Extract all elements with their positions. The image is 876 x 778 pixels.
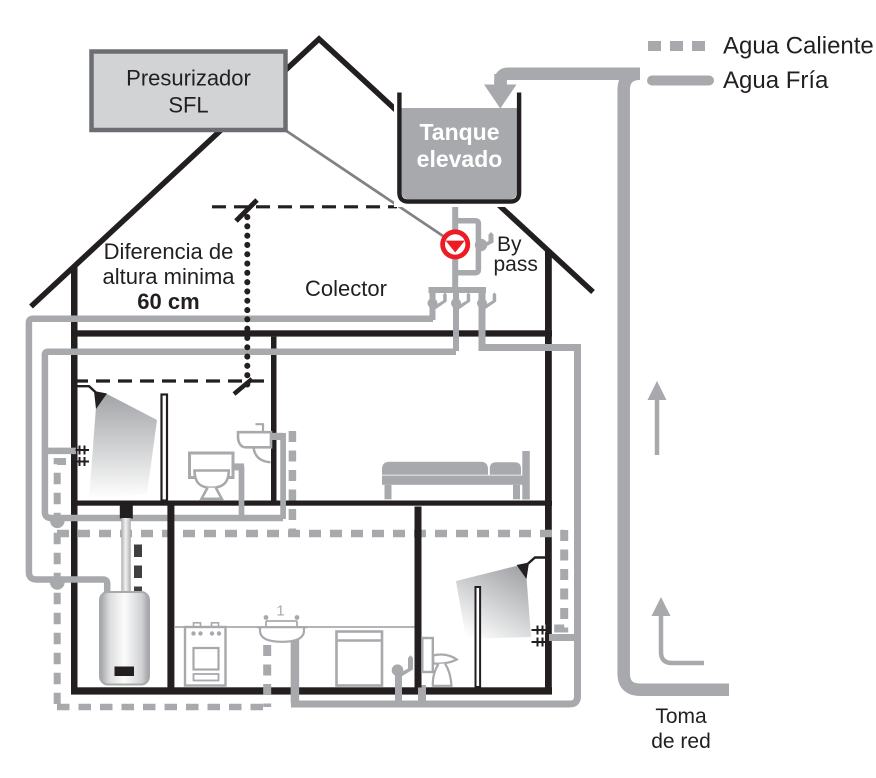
svg-text:Diferencia de: Diferencia de <box>104 239 234 264</box>
svg-text:altura minima: altura minima <box>102 264 235 289</box>
svg-text:Toma: Toma <box>655 705 707 728</box>
svg-text:60 cm: 60 cm <box>137 289 199 314</box>
svg-text:pass: pass <box>494 253 538 276</box>
svg-text:Colector: Colector <box>305 276 387 301</box>
svg-text:de red: de red <box>651 730 711 753</box>
svg-text:SFL: SFL <box>168 93 208 118</box>
svg-text:Tanque: Tanque <box>419 119 499 145</box>
svg-text:Presurizador: Presurizador <box>126 66 251 91</box>
svg-text:Agua Caliente: Agua Caliente <box>723 33 874 60</box>
svg-text:1: 1 <box>276 603 284 620</box>
svg-text:elevado: elevado <box>417 146 503 172</box>
svg-text:Agua Fría: Agua Fría <box>723 67 829 94</box>
